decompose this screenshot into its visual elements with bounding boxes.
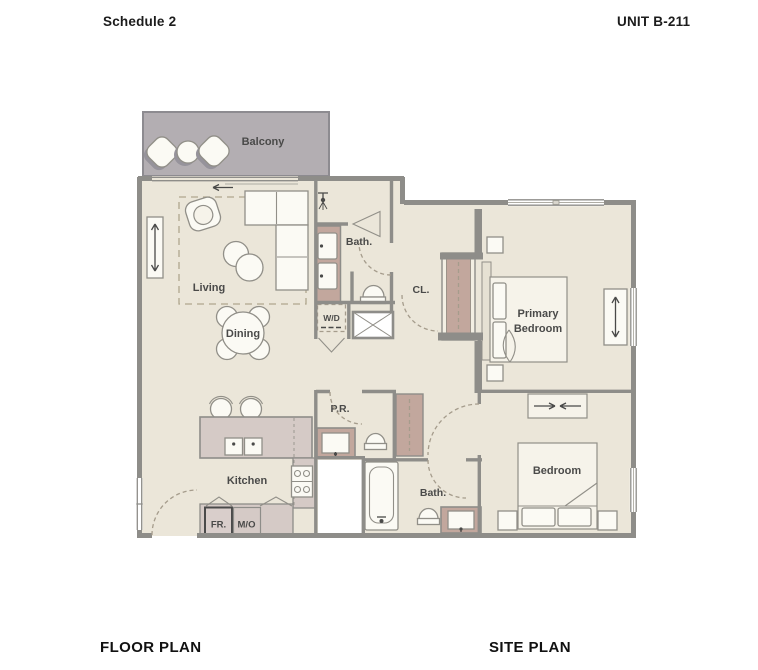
bath-lower-label: Bath. (420, 487, 446, 499)
living-label: Living (193, 282, 225, 294)
dining-label: Dining (226, 328, 260, 340)
wall-stub (475, 209, 483, 259)
fridge-label: FR. (211, 520, 226, 531)
primary-bedroom-label-2: Bedroom (514, 323, 563, 335)
sink-icon (225, 438, 243, 455)
nightstand-icon (598, 511, 617, 530)
wall-stub (438, 333, 483, 341)
pillow-icon (558, 508, 591, 526)
sink-icon (322, 433, 349, 453)
sink-icon (245, 438, 263, 455)
hall-closet (396, 394, 423, 456)
bathtub-icon (365, 462, 398, 530)
washer-dryer-label: W/D (323, 313, 340, 323)
pillow-icon (522, 508, 555, 526)
primary-bedroom-label-1: Primary (518, 308, 560, 320)
nightstand-icon (487, 237, 503, 253)
microwave-oven-label: M/O (238, 520, 256, 531)
floor-plan-drawing: Balcony Living (0, 0, 758, 670)
room-balcony: Balcony (141, 112, 329, 176)
window (630, 468, 637, 512)
pillow-icon (493, 283, 506, 319)
wall-stub (475, 341, 483, 393)
sink-icon (448, 511, 474, 529)
powder-room-label: P.R. (330, 403, 349, 415)
building-core-notch (318, 460, 362, 534)
window (136, 478, 142, 530)
window (630, 288, 637, 346)
window (508, 199, 604, 206)
balcony-label: Balcony (242, 136, 286, 148)
bedroom-label: Bedroom (533, 465, 582, 477)
sliding-wardrobe-icon (528, 394, 587, 418)
closet-label: CL. (413, 284, 430, 296)
nightstand-icon (498, 511, 517, 530)
kitchen-label: Kitchen (227, 475, 268, 487)
tv-console-icon (147, 217, 163, 278)
window-seat-icon (604, 289, 627, 345)
nightstand-icon (487, 365, 503, 381)
bath-upper-label: Bath. (346, 236, 372, 248)
hall-wardrobe (396, 394, 423, 456)
floor-plan-caption: FLOOR PLAN (100, 639, 202, 656)
dining-area: Dining (217, 307, 270, 360)
site-plan-caption: SITE PLAN (489, 639, 571, 656)
service-shaft (353, 312, 393, 338)
floor-plan-page: Schedule 2 UNIT B-211 Balcony (0, 0, 758, 670)
stove-icon (292, 466, 313, 497)
